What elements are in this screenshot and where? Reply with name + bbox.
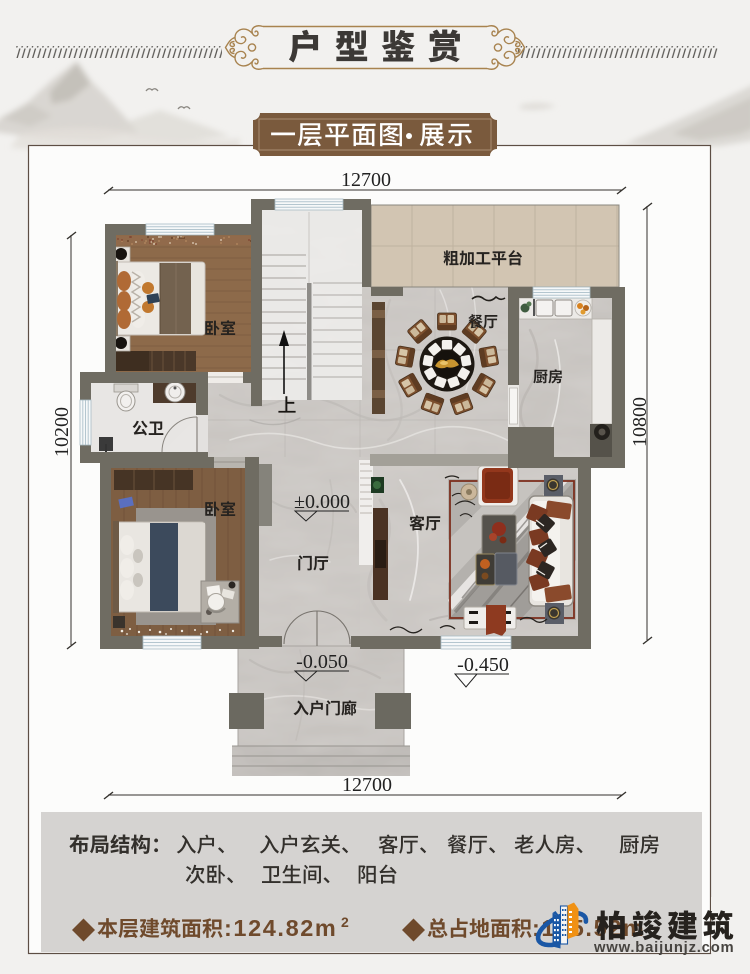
svg-text:2: 2 bbox=[341, 914, 349, 930]
svg-text:-0.050: -0.050 bbox=[296, 651, 348, 673]
svg-text::185.52m: :185.52m bbox=[532, 915, 645, 941]
svg-text:10200: 10200 bbox=[51, 407, 73, 457]
svg-text:www.baijunjz.com: www.baijunjz.com bbox=[593, 940, 735, 956]
svg-text:10800: 10800 bbox=[629, 397, 651, 447]
svg-text:-0.450: -0.450 bbox=[457, 654, 509, 676]
svg-text::124.82m: :124.82m bbox=[224, 915, 337, 941]
svg-text:12700: 12700 bbox=[341, 169, 391, 191]
svg-text:12700: 12700 bbox=[342, 774, 392, 796]
svg-text:±0.000: ±0.000 bbox=[294, 491, 350, 513]
